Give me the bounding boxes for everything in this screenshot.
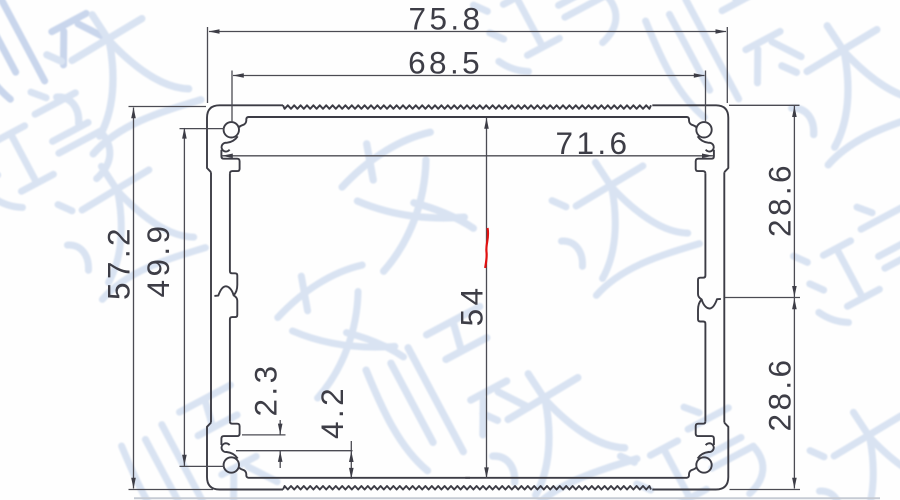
svg-text:75.8: 75.8 — [409, 1, 484, 37]
svg-text:54: 54 — [454, 285, 490, 327]
svg-text:49.9: 49.9 — [140, 223, 176, 298]
svg-text:28.6: 28.6 — [762, 162, 798, 237]
svg-text:2.3: 2.3 — [248, 363, 284, 417]
svg-text:68.5: 68.5 — [408, 45, 483, 81]
svg-text:4.2: 4.2 — [314, 385, 350, 439]
svg-text:71.6: 71.6 — [556, 125, 631, 161]
svg-text:28.6: 28.6 — [762, 357, 798, 432]
svg-text:57.2: 57.2 — [101, 225, 137, 300]
